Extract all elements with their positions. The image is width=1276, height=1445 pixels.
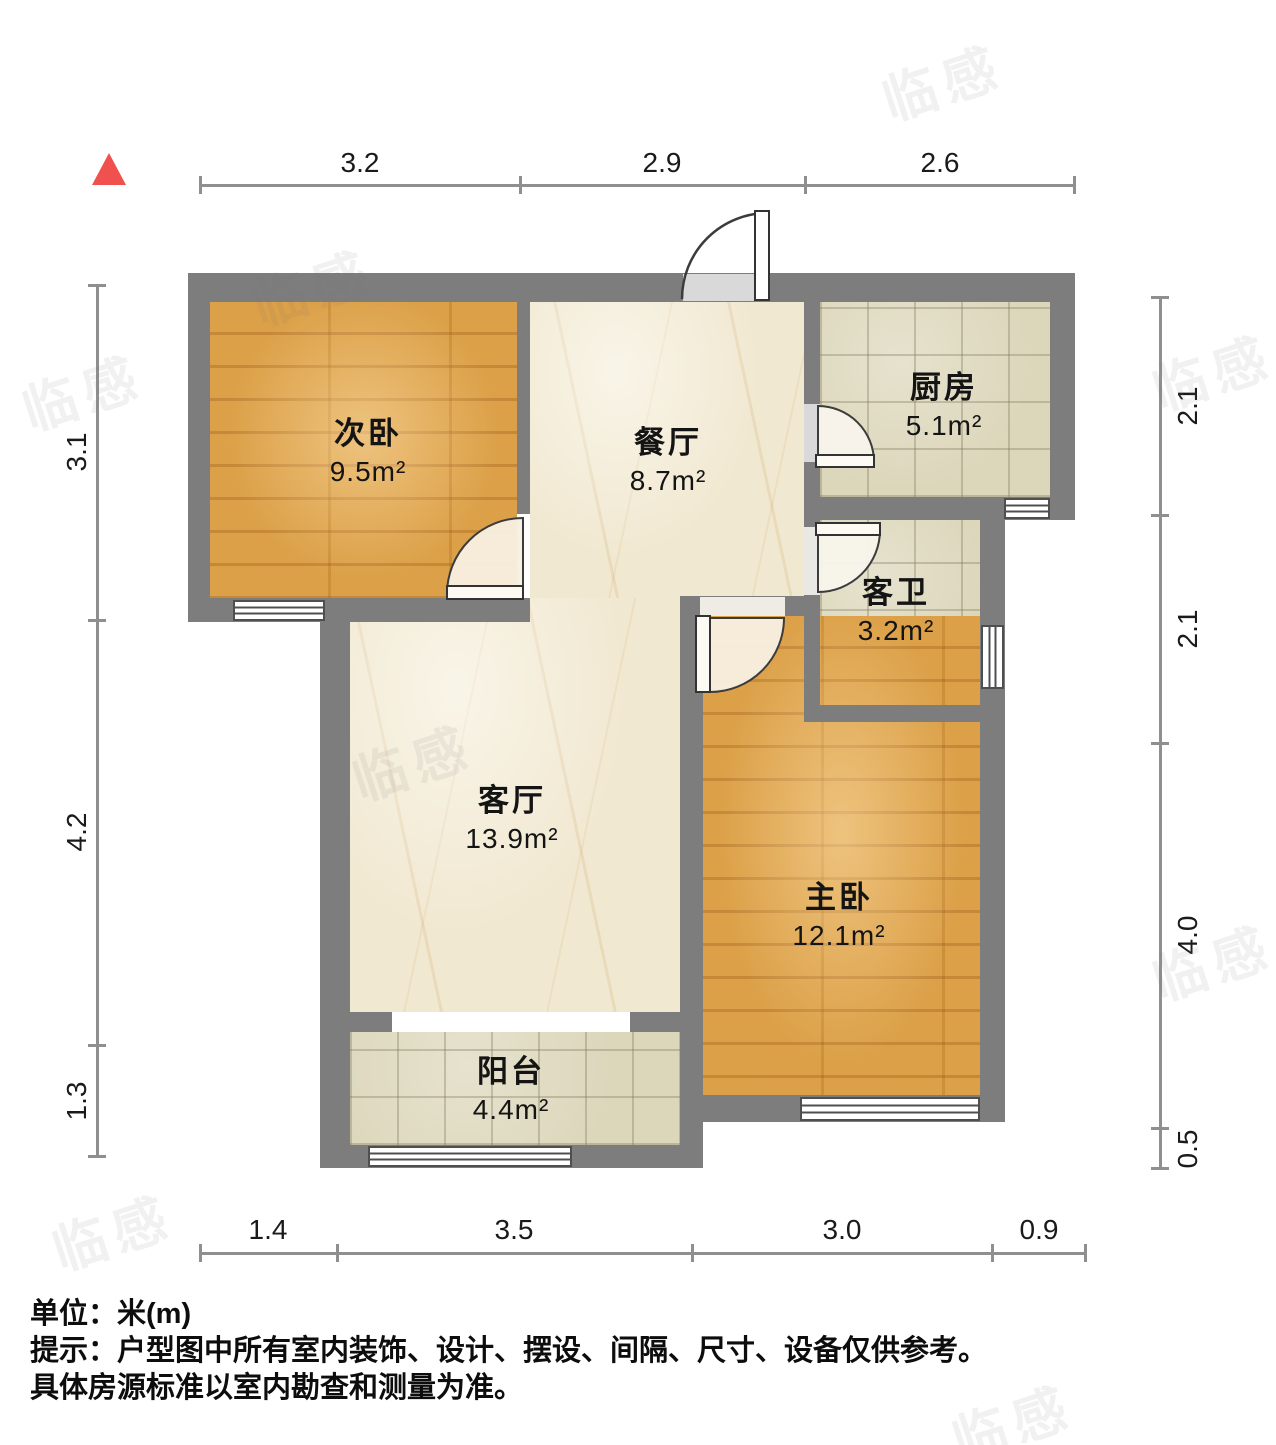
window-master-bedroom (800, 1097, 980, 1121)
dim-tick (1151, 514, 1169, 517)
dim-tick (88, 1044, 106, 1047)
watermark: 临感 (11, 333, 153, 446)
dim-label-bottom-3: 3.0 (823, 1214, 862, 1246)
room-name: 客厅 (465, 775, 558, 820)
dim-tick (1151, 1127, 1169, 1130)
dim-tick (691, 1244, 694, 1262)
room-label-secondary-bedroom: 次卧 9.5m² (330, 408, 407, 488)
wall-bathroom-bottom (804, 705, 1005, 722)
watermark: 临感 (41, 1173, 183, 1286)
room-area: 8.7m² (630, 465, 707, 497)
dim-tick (1073, 176, 1076, 194)
kitchen-door-opening (804, 404, 820, 462)
footer-tip-line2: 具体房源标准以室内勘查和测量为准。 (30, 1370, 987, 1407)
floorplan-canvas: 次卧 9.5m² 餐厅 8.7m² 厨房 5.1m² 客卫 3.2m² 客厅 1… (0, 0, 1276, 1445)
wall-living-left (320, 598, 350, 1168)
north-arrow-icon (92, 153, 126, 185)
room-area: 5.1m² (906, 410, 983, 442)
window-secondary-bedroom (233, 600, 325, 621)
entrance-door-opening (683, 274, 769, 301)
room-name: 厨房 (906, 362, 983, 407)
window-kitchen (1004, 498, 1050, 519)
dim-label-top-2: 2.9 (643, 147, 682, 179)
dim-label-bottom-4: 0.9 (1020, 1214, 1059, 1246)
footer-unit-label: 单位：米(m) (30, 1296, 987, 1333)
bathroom-door-opening (804, 527, 820, 595)
dim-line-bottom (200, 1252, 1086, 1255)
watermark: 临感 (871, 23, 1013, 136)
wall-balcony-stub-left (320, 1012, 392, 1032)
room-area: 12.1m² (792, 920, 885, 952)
room-name: 阳台 (473, 1046, 550, 1091)
dim-label-left-2: 4.2 (61, 813, 93, 852)
room-label-bathroom: 客卫 3.2m² (858, 567, 935, 647)
dim-label-bottom-2: 3.5 (495, 1214, 534, 1246)
room-label-dining: 餐厅 8.7m² (630, 417, 707, 497)
dim-tick (199, 1244, 202, 1262)
dim-tick (1084, 1244, 1087, 1262)
wall-kitchen-right (1050, 273, 1075, 520)
room-name: 餐厅 (630, 417, 707, 462)
wall-top (188, 273, 1075, 302)
room-label-master-bedroom: 主卧 12.1m² (792, 872, 885, 952)
room-label-kitchen: 厨房 5.1m² (906, 362, 983, 442)
window-balcony (368, 1146, 572, 1167)
room-area: 13.9m² (465, 823, 558, 855)
room-area: 9.5m² (330, 456, 407, 488)
dim-label-right-4: 0.5 (1172, 1130, 1204, 1169)
wall-left-upper (188, 273, 210, 622)
dim-tick (88, 1155, 106, 1158)
dim-label-left-3: 1.3 (61, 1082, 93, 1121)
dim-tick (1151, 1167, 1169, 1170)
dim-label-left-1: 3.1 (61, 433, 93, 472)
wall-living-master (680, 596, 703, 1168)
room-area: 4.4m² (473, 1094, 550, 1126)
dim-tick (88, 284, 106, 287)
dim-line-right (1159, 297, 1162, 1170)
dim-line-left (96, 285, 99, 1158)
room-label-balcony: 阳台 4.4m² (473, 1046, 550, 1126)
wall-master-right (980, 497, 1005, 1122)
wall-balcony-stub-right (630, 1012, 680, 1032)
dim-label-bottom-1: 1.4 (249, 1214, 288, 1246)
room-label-living: 客厅 13.9m² (465, 775, 558, 855)
dim-tick (991, 1244, 994, 1262)
window-bathroom (981, 625, 1004, 689)
room-master-bedroom-floor (703, 616, 980, 1095)
wall-bedroom-right (517, 302, 530, 517)
room-area: 3.2m² (858, 615, 935, 647)
dim-label-right-2: 2.1 (1172, 610, 1204, 649)
dim-label-top-1: 3.2 (341, 147, 380, 179)
dim-label-right-1: 2.1 (1172, 387, 1204, 426)
dim-label-right-3: 4.0 (1172, 916, 1204, 955)
dim-tick (804, 176, 807, 194)
dim-tick (1151, 296, 1169, 299)
dim-tick (88, 619, 106, 622)
dim-label-top-3: 2.6 (921, 147, 960, 179)
dim-tick (336, 1244, 339, 1262)
dim-tick (1151, 742, 1169, 745)
dim-line-top (200, 184, 1075, 187)
room-name: 客卫 (858, 567, 935, 612)
footer-tip-line1: 提示：户型图中所有室内装饰、设计、摆设、间隔、尺寸、设备仅供参考。 (30, 1333, 987, 1370)
room-name: 次卧 (330, 408, 407, 453)
dim-tick (199, 176, 202, 194)
room-name: 主卧 (792, 872, 885, 917)
master-door-opening (700, 597, 785, 616)
dim-tick (519, 176, 522, 194)
bedroom-door-opening (517, 514, 530, 598)
footer-notes: 单位：米(m) 提示：户型图中所有室内装饰、设计、摆设、间隔、尺寸、设备仅供参考… (30, 1296, 987, 1407)
